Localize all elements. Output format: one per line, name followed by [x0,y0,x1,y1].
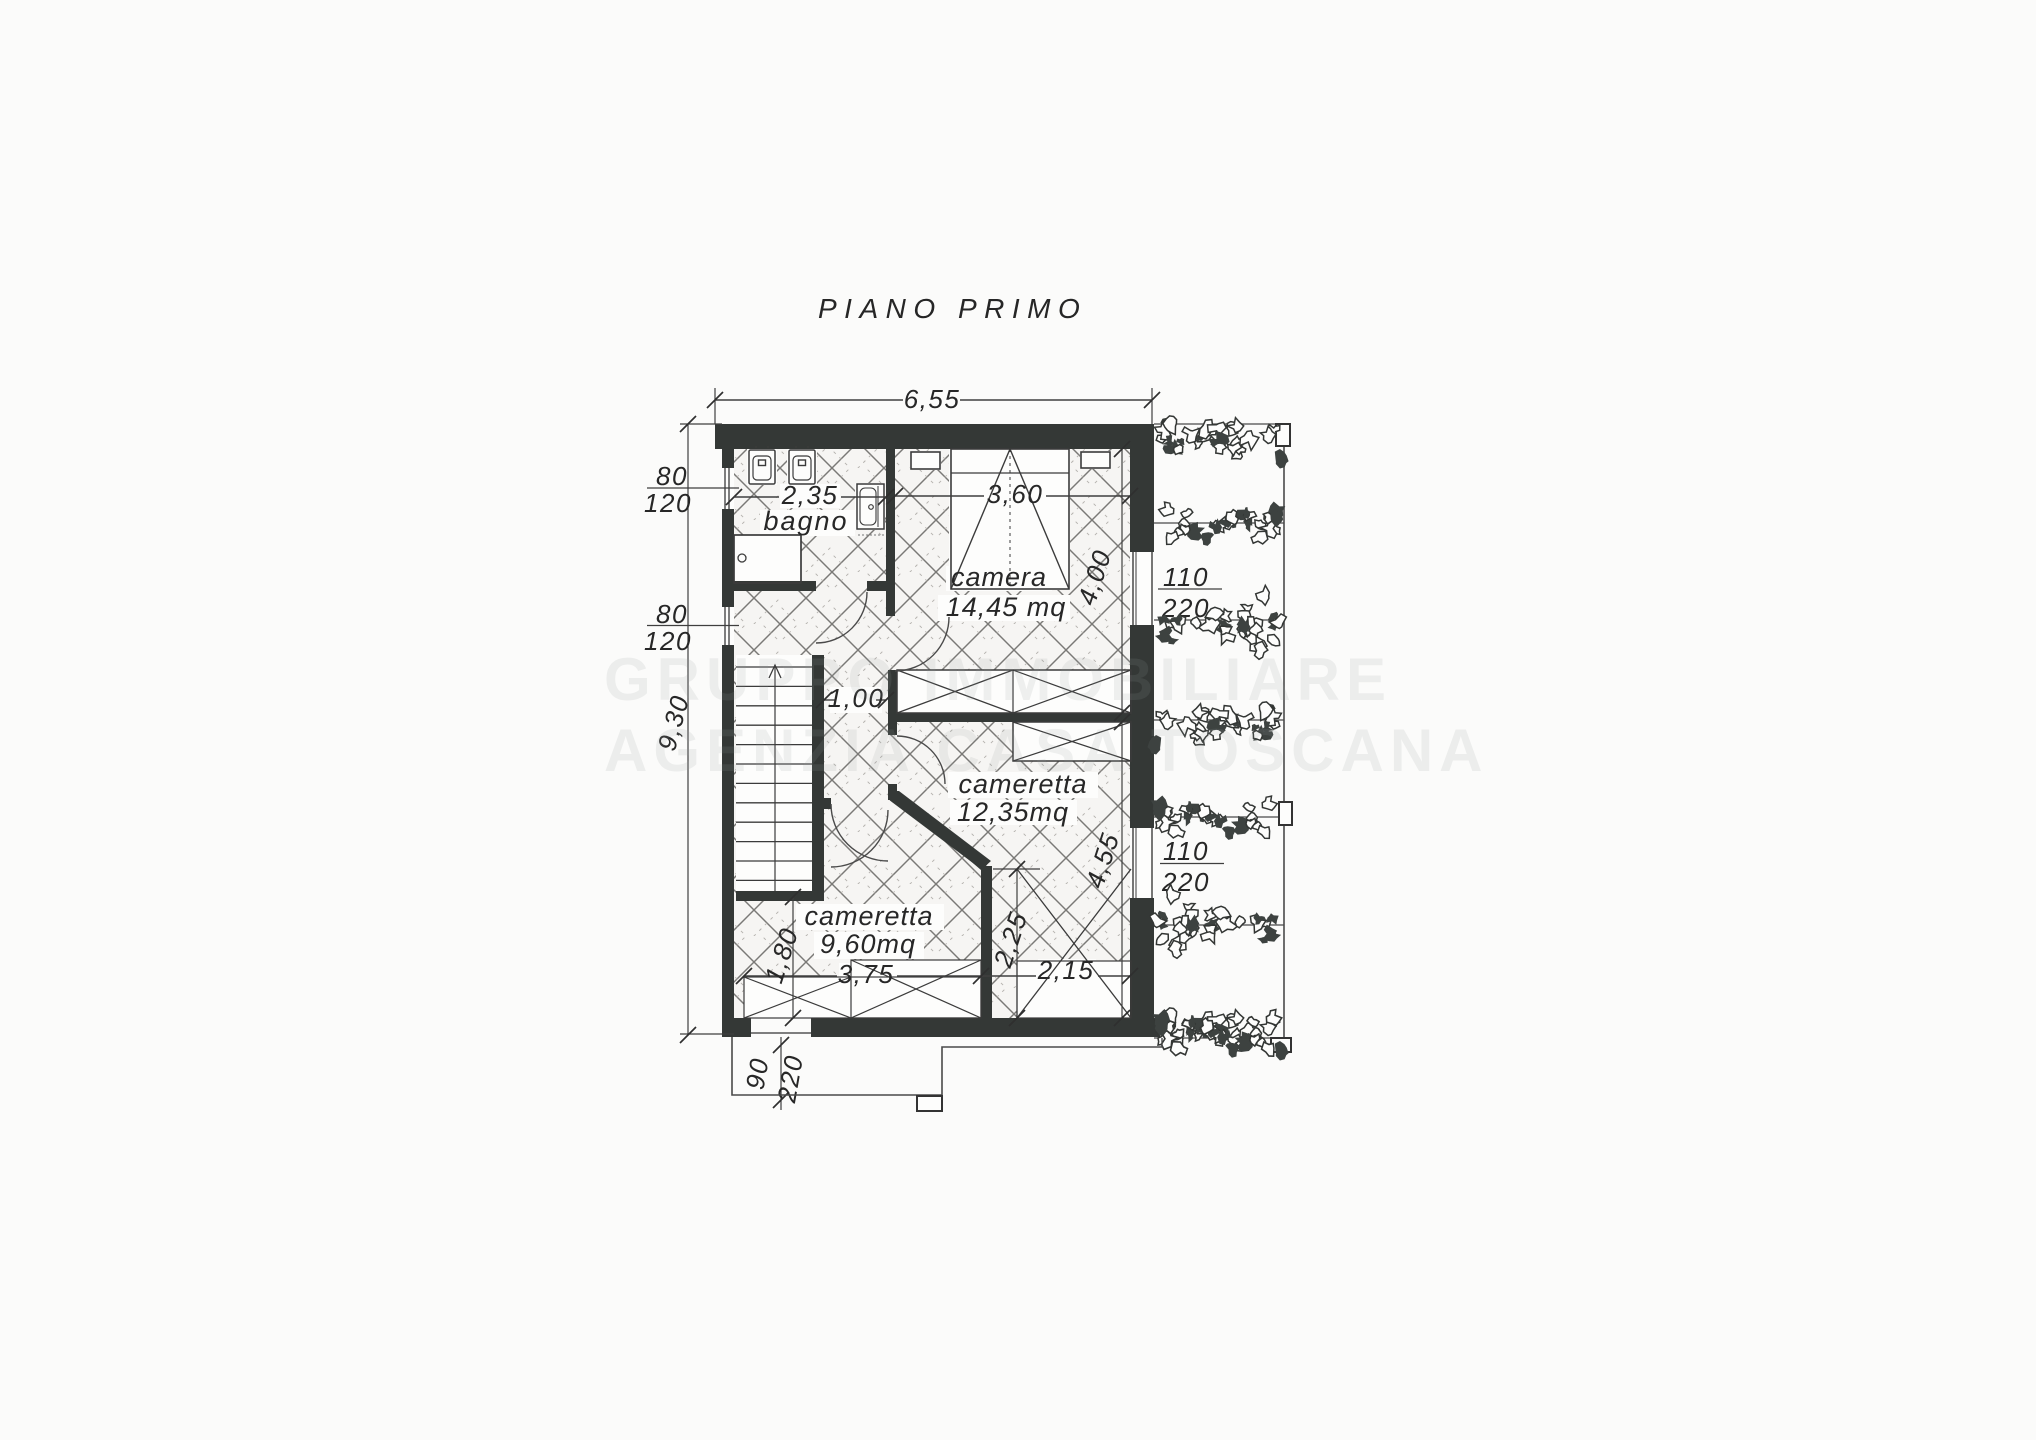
svg-text:PRIMO: PRIMO [958,293,1087,324]
svg-text:3,75: 3,75 [838,959,895,989]
svg-text:110: 110 [1163,562,1209,592]
svg-text:120: 120 [644,488,692,518]
svg-text:bagno: bagno [763,506,848,536]
svg-text:14,45 mq: 14,45 mq [946,592,1067,622]
svg-text:3,60: 3,60 [987,479,1044,509]
svg-text:cameretta: cameretta [804,901,933,931]
svg-text:80: 80 [656,599,688,629]
svg-text:12,35mq: 12,35mq [957,797,1069,827]
svg-text:80: 80 [656,461,688,491]
svg-text:90: 90 [740,1055,775,1092]
svg-text:PIANO: PIANO [818,293,943,324]
svg-text:9,60mq: 9,60mq [820,929,916,959]
svg-text:2,15: 2,15 [1037,955,1095,985]
svg-text:AGENZIA CASA TOSCANA: AGENZIA CASA TOSCANA [604,717,1488,784]
svg-text:110: 110 [1163,836,1209,866]
svg-text:GRUPPO IMMOBILIARE: GRUPPO IMMOBILIARE [604,646,1392,713]
svg-text:camera: camera [951,562,1047,592]
svg-text:6,55: 6,55 [904,384,961,414]
